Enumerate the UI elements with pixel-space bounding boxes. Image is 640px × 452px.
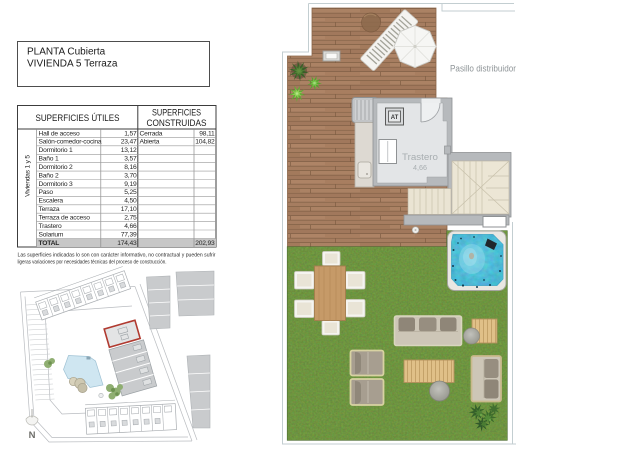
svg-text:Dormitorio 1: Dormitorio 1: [39, 147, 73, 154]
svg-text:23,47: 23,47: [121, 139, 137, 146]
svg-text:Hall de acceso: Hall de acceso: [39, 130, 81, 137]
svg-text:Cerrada: Cerrada: [140, 130, 163, 137]
svg-text:9,19: 9,19: [124, 181, 137, 188]
svg-text:PLANTA Cubierta: PLANTA Cubierta: [27, 47, 106, 58]
svg-text:5,25: 5,25: [124, 189, 137, 196]
svg-text:Dormitorio 3: Dormitorio 3: [39, 181, 73, 188]
svg-text:3,70: 3,70: [124, 172, 137, 179]
svg-text:Solarium: Solarium: [39, 231, 64, 238]
svg-text:SUPERFICIES: SUPERFICIES: [152, 108, 201, 118]
svg-text:Abierta: Abierta: [140, 139, 160, 146]
svg-text:4,50: 4,50: [124, 198, 137, 205]
svg-text:77,39: 77,39: [121, 231, 137, 238]
svg-text:13,12: 13,12: [121, 147, 137, 154]
svg-text:Terraza: Terraza: [39, 206, 60, 213]
svg-text:Paso: Paso: [39, 189, 54, 196]
svg-text:Baño 1: Baño 1: [39, 156, 59, 163]
svg-text:Salón-comedor-cocina: Salón-comedor-cocina: [39, 139, 102, 146]
svg-text:Trastero: Trastero: [402, 152, 438, 162]
svg-text:Escalera: Escalera: [39, 198, 64, 205]
svg-text:Las superficies indicadas lo s: Las superficies indicadas lo son con car…: [18, 253, 216, 259]
svg-text:104,82: 104,82: [195, 139, 215, 146]
svg-text:4,66: 4,66: [413, 163, 427, 172]
svg-text:AT: AT: [391, 115, 399, 121]
svg-text:Trastero: Trastero: [39, 223, 63, 230]
svg-text:202,93: 202,93: [195, 240, 215, 247]
svg-text:Dormitorio 2: Dormitorio 2: [39, 164, 73, 171]
svg-text:SUPERFICIES ÚTILES: SUPERFICIES ÚTILES: [36, 113, 120, 123]
svg-text:17,10: 17,10: [121, 206, 137, 213]
svg-text:8,16: 8,16: [124, 164, 137, 171]
svg-text:174,43: 174,43: [117, 240, 137, 247]
svg-text:4,66: 4,66: [124, 223, 137, 230]
svg-text:1,57: 1,57: [124, 130, 137, 137]
svg-text:N: N: [29, 430, 36, 441]
svg-text:ligeras variaciones por necesi: ligeras variaciones por necesidades técn…: [18, 260, 167, 266]
svg-text:TOTAL: TOTAL: [39, 240, 60, 247]
svg-text:Viviendas 1 y 5: Viviendas 1 y 5: [25, 155, 32, 197]
svg-text:Baño 2: Baño 2: [39, 172, 59, 179]
svg-text:2,75: 2,75: [124, 215, 137, 222]
svg-text:3,57: 3,57: [124, 156, 137, 163]
svg-text:Terraza de acceso: Terraza de acceso: [39, 215, 91, 222]
svg-text:Pasillo distribuidor: Pasillo distribuidor: [450, 64, 516, 75]
svg-text:VIVIENDA 5 Terraza: VIVIENDA 5 Terraza: [27, 59, 118, 70]
svg-text:CONSTRUIDAS: CONSTRUIDAS: [147, 118, 207, 128]
svg-text:98,11: 98,11: [199, 130, 215, 137]
